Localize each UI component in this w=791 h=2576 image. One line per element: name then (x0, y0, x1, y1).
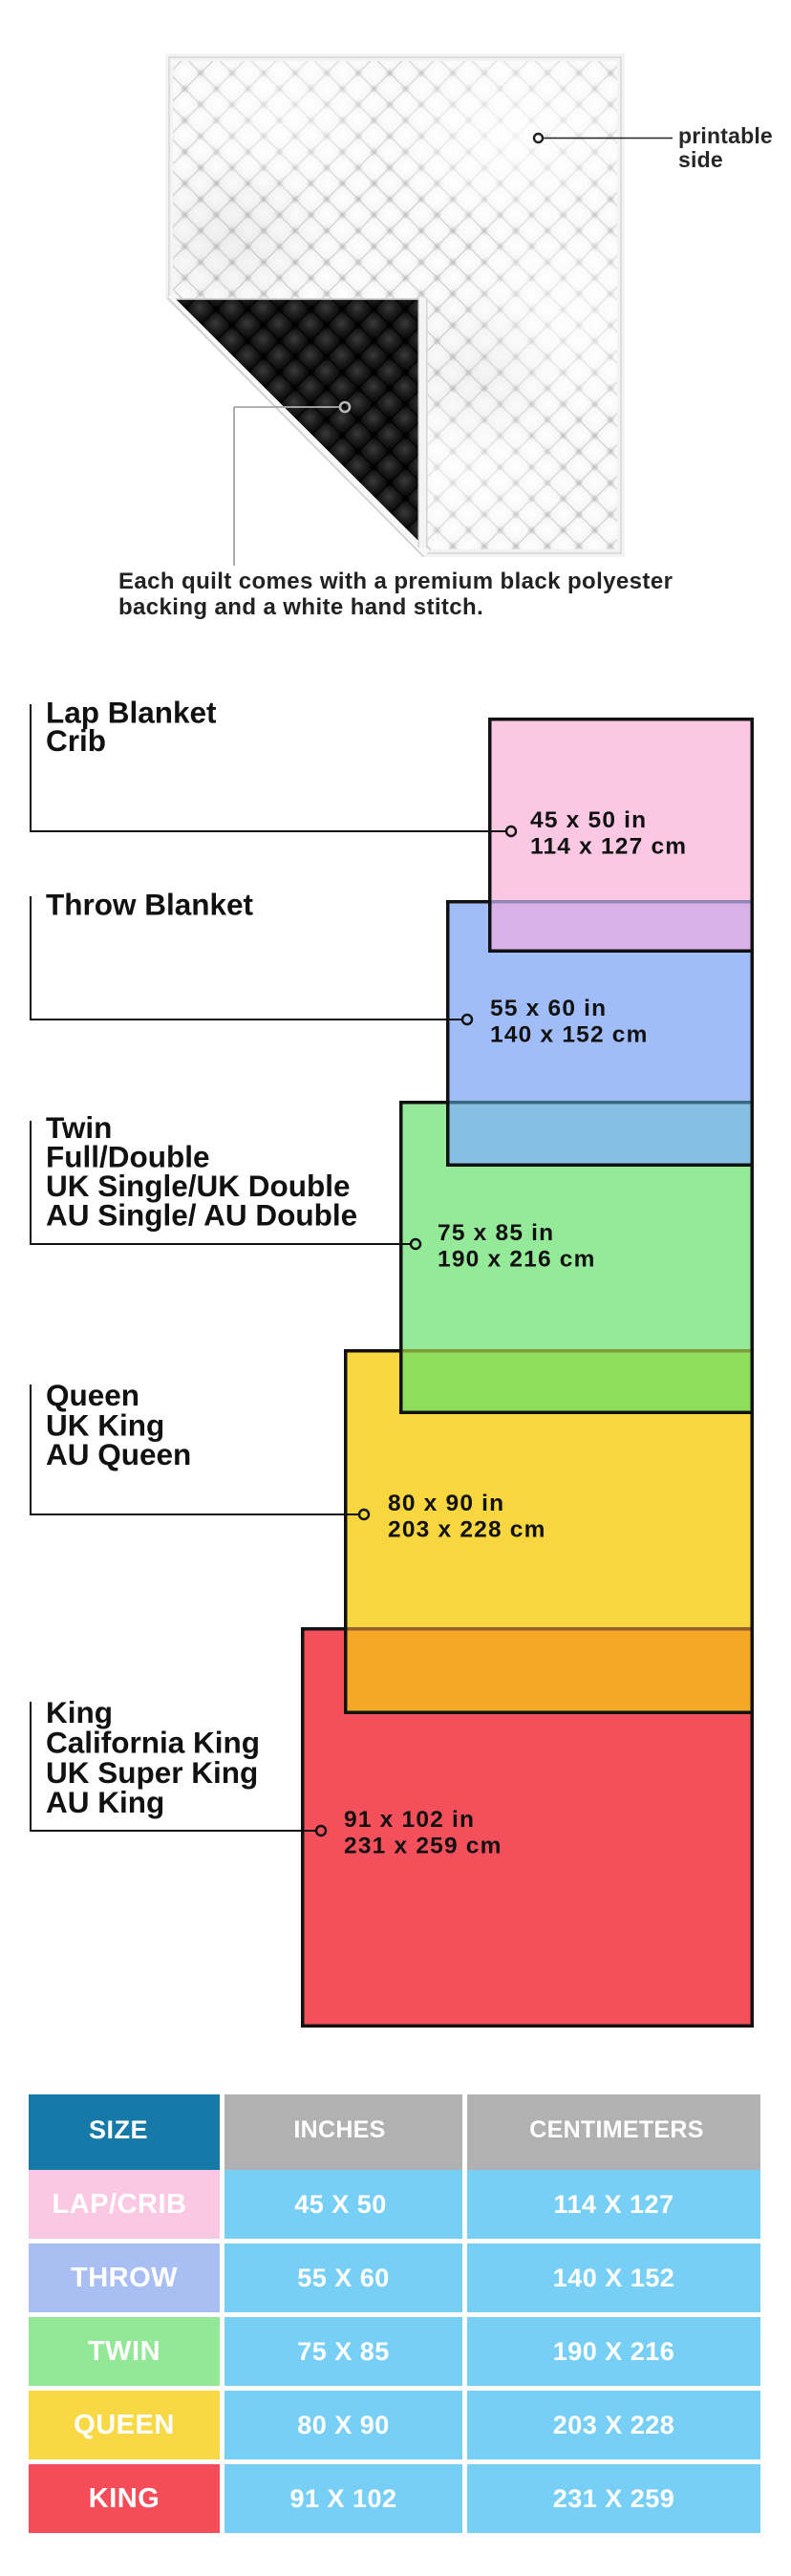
svg-text:114 x 127 cm: 114 x 127 cm (530, 834, 687, 860)
svg-text:75 x 85 in: 75 x 85 in (438, 1220, 554, 1246)
svg-text:140 x 152 cm: 140 x 152 cm (490, 1022, 649, 1048)
svg-text:AU King: AU King (46, 1785, 164, 1819)
svg-text:80 x 90 in: 80 x 90 in (388, 1491, 504, 1516)
svg-text:45 x 50 in: 45 x 50 in (530, 807, 647, 833)
svg-text:203 x 228 cm: 203 x 228 cm (388, 1517, 546, 1543)
svg-text:91 x 102 in: 91 x 102 in (344, 1807, 475, 1833)
svg-text:AU Queen: AU Queen (46, 1437, 191, 1471)
svg-text:AU Single/ AU Double: AU Single/ AU Double (46, 1198, 357, 1233)
svg-text:Throw Blanket: Throw Blanket (46, 888, 254, 922)
svg-text:190 x 216 cm: 190 x 216 cm (438, 1247, 596, 1273)
svg-text:231 x 259 cm: 231 x 259 cm (344, 1834, 502, 1859)
svg-text:Crib: Crib (46, 723, 106, 758)
svg-text:55 x 60 in: 55 x 60 in (490, 996, 607, 1021)
